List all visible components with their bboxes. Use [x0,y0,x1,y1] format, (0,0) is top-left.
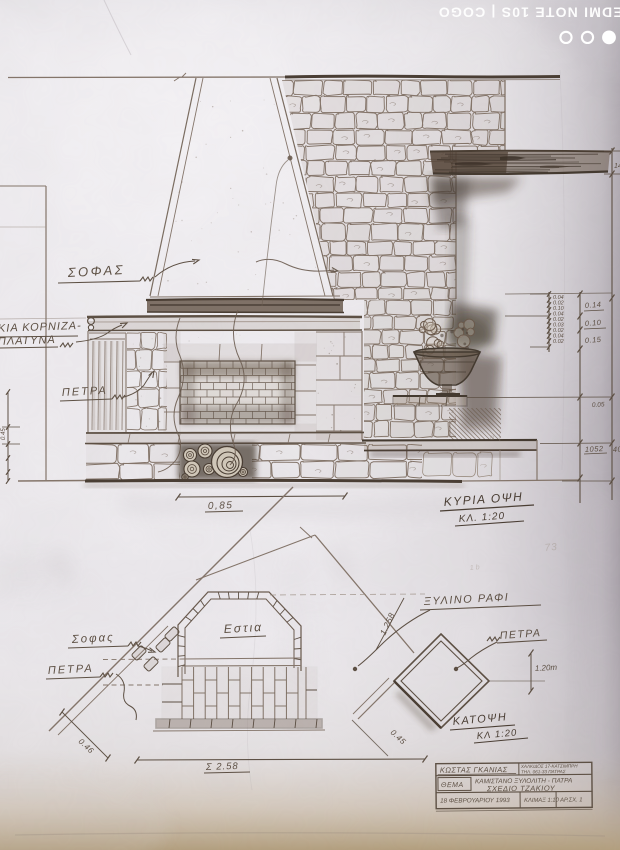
svg-text:ΑΡ.ΣΧ. 1: ΑΡ.ΣΧ. 1 [559,797,582,803]
svg-text:14: 14 [614,163,620,170]
svg-text:1 b: 1 b [470,564,480,572]
svg-text:ΠΕΤΡΑ: ΠΕΤΡΑ [48,663,94,677]
svg-text:d |: d | [490,433,502,442]
svg-text:ΣΟΦΑΣ: ΣΟΦΑΣ [66,262,125,280]
svg-text:0.02: 0.02 [553,339,564,345]
svg-text:ΤΗΛ. 061-33 ΠΑΤΡΑΣ: ΤΗΛ. 061-33 ΠΑΤΡΑΣ [521,769,566,774]
svg-text:ΚΩΣΤΑΣ ΓΚΑΝΙΑΣ: ΚΩΣΤΑΣ ΓΚΑΝΙΑΣ [440,765,508,775]
svg-text:1.20m: 1.20m [535,663,558,673]
svg-text:40: 40 [613,445,620,454]
svg-text:ΚΛΙΜΑΞ 1:10: ΚΛΙΜΑΞ 1:10 [524,798,560,804]
svg-text:ΠΛΑΤΥΝΑ: ΠΛΑΤΥΝΑ [0,334,56,348]
svg-text:ΣΧΕΔΙΟ ΤΖΑΚΙΟΥ: ΣΧΕΔΙΟ ΤΖΑΚΙΟΥ [486,784,556,794]
svg-text:REDMI NOTE 10S | COGO: REDMI NOTE 10S | COGO [438,5,620,21]
svg-text:0.05: 0.05 [592,401,605,409]
svg-text:0.15: 0.15 [585,335,603,345]
svg-text:0,85: 0,85 [208,500,234,512]
svg-text:0.45: 0.45 [1,428,7,440]
svg-text:ΧΑΛΚΙΔΟΣ 17-ΚΑΤΣΙΜΠΡΗ: ΧΑΛΚΙΔΟΣ 17-ΚΑΤΣΙΜΠΡΗ [520,763,578,769]
svg-text:Εστια: Εστια [223,620,263,636]
svg-text:1052: 1052 [585,444,604,454]
svg-text:73: 73 [544,542,558,554]
svg-text:Σ 2.58: Σ 2.58 [205,761,239,773]
svg-text:ΠΕΤΡΑ: ΠΕΤΡΑ [62,385,108,399]
svg-text:0.14: 0.14 [585,300,602,310]
svg-text:Σοφας: Σοφας [71,632,116,646]
svg-text:ΘΕΜΑ: ΘΕΜΑ [441,782,464,789]
svg-text:0.10: 0.10 [585,318,603,328]
svg-text:18 ΦΕΒΡΟΥΑΡΙΟΥ 1993: 18 ΦΕΒΡΟΥΑΡΙΟΥ 1993 [440,797,510,805]
